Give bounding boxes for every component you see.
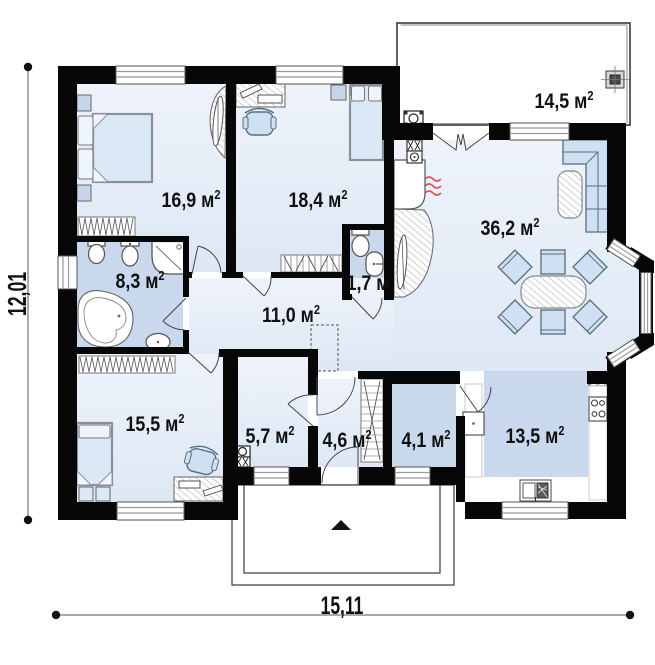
svg-text:18,4 м2: 18,4 м2 bbox=[289, 187, 348, 212]
svg-text:15,11: 15,11 bbox=[321, 591, 364, 620]
svg-text:11,0 м2: 11,0 м2 bbox=[262, 302, 320, 327]
svg-text:12,01: 12,01 bbox=[3, 272, 32, 316]
svg-text:4,1 м2: 4,1 м2 bbox=[401, 427, 450, 452]
svg-text:5,7 м2: 5,7 м2 bbox=[245, 423, 294, 448]
svg-text:36,2 м2: 36,2 м2 bbox=[481, 215, 540, 240]
svg-text:15,5 м2: 15,5 м2 bbox=[126, 411, 185, 436]
svg-text:14,5 м2: 14,5 м2 bbox=[535, 88, 594, 113]
svg-text:13,5 м2: 13,5 м2 bbox=[506, 423, 565, 448]
svg-text:1,7 м: 1,7 м bbox=[347, 272, 390, 296]
svg-text:16,9 м2: 16,9 м2 bbox=[162, 187, 221, 212]
svg-text:8,3 м2: 8,3 м2 bbox=[115, 268, 164, 293]
svg-text:4,6 м2: 4,6 м2 bbox=[322, 427, 371, 452]
